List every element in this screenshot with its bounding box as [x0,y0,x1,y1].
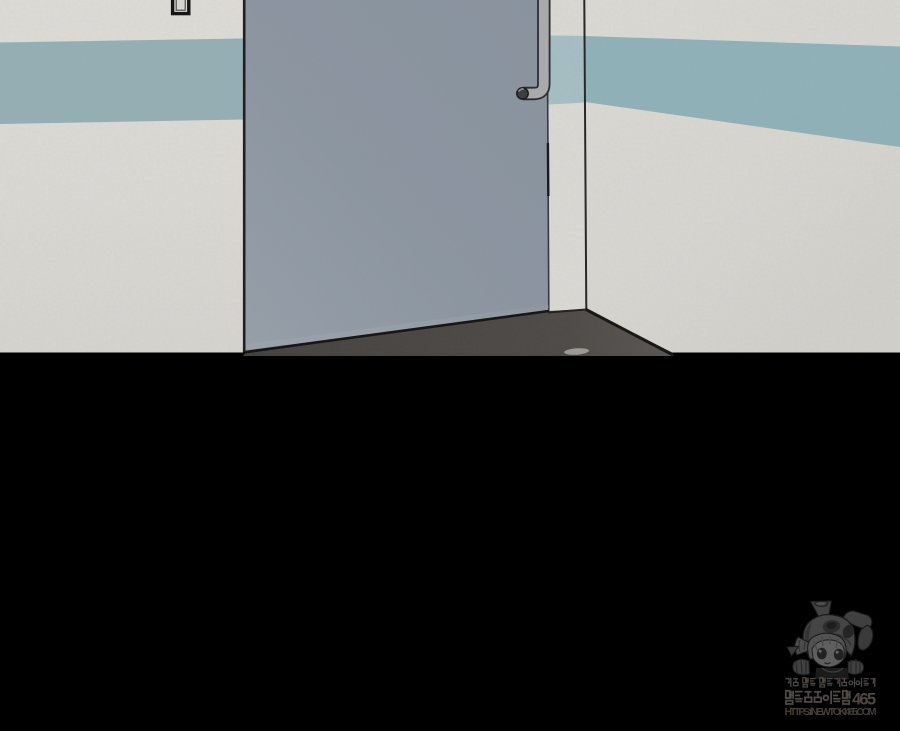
svg-text:HTTPS://NEWTOKI465.COM: HTTPS://NEWTOKI465.COM [785,706,877,718]
